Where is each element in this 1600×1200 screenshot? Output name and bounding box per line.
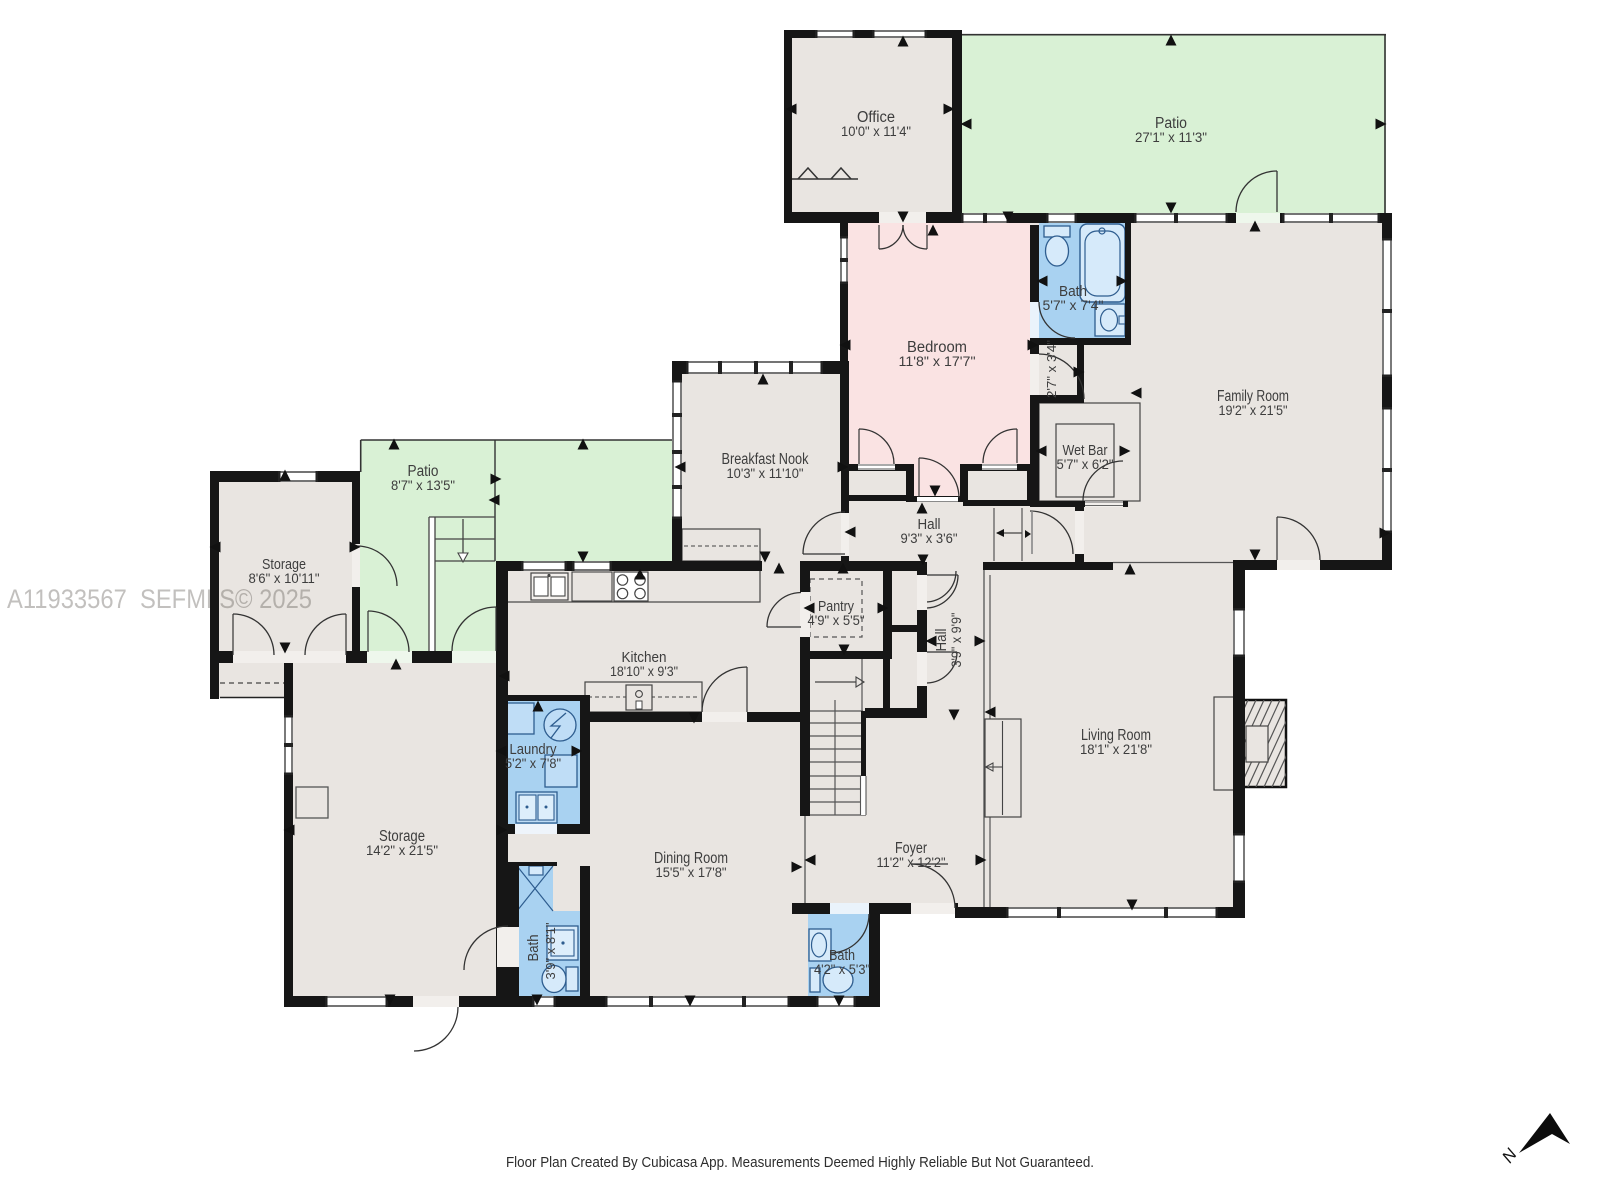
svg-text:14'2" x 21'5": 14'2" x 21'5" — [366, 842, 438, 858]
svg-text:11'2" x 12'2": 11'2" x 12'2" — [877, 854, 946, 870]
svg-text:2'7" x 3'4": 2'7" x 3'4" — [1044, 340, 1059, 398]
svg-text:5'2" x 7'8": 5'2" x 7'8" — [505, 756, 561, 771]
svg-text:5'7" x 7'4": 5'7" x 7'4" — [1043, 298, 1104, 313]
svg-text:15'5" x 17'8": 15'5" x 17'8" — [656, 864, 727, 880]
svg-text:4'9" x 5'5": 4'9" x 5'5" — [808, 613, 865, 628]
svg-text:A11933567 SEFMLS© 2025: A11933567 SEFMLS© 2025 — [7, 584, 312, 614]
svg-text:5'7" x 6'2": 5'7" x 6'2" — [1057, 457, 1114, 472]
svg-text:9'3" x 3'6": 9'3" x 3'6" — [901, 531, 958, 546]
svg-text:Bath: Bath — [525, 935, 542, 962]
svg-text:19'2" x 21'5": 19'2" x 21'5" — [1219, 402, 1288, 418]
svg-text:4'2" x 5'3": 4'2" x 5'3" — [814, 962, 870, 977]
svg-text:Floor Plan Created By Cubicasa: Floor Plan Created By Cubicasa App. Meas… — [506, 1154, 1094, 1171]
svg-text:3'9" x 8'1": 3'9" x 8'1" — [543, 922, 558, 979]
svg-text:27'1" x 11'3": 27'1" x 11'3" — [1135, 129, 1207, 145]
svg-text:10'0" x 11'4": 10'0" x 11'4" — [841, 123, 911, 139]
svg-text:8'7" x 13'5": 8'7" x 13'5" — [391, 477, 455, 493]
svg-text:8'6" x 10'11": 8'6" x 10'11" — [249, 571, 320, 586]
svg-text:Hall: Hall — [933, 629, 950, 652]
svg-text:3'9" x 9'9": 3'9" x 9'9" — [949, 612, 964, 667]
svg-text:10'3" x 11'10": 10'3" x 11'10" — [727, 465, 804, 481]
svg-text:11'8" x 17'7": 11'8" x 17'7" — [899, 353, 976, 369]
svg-text:18'10" x 9'3": 18'10" x 9'3" — [610, 664, 678, 679]
svg-text:18'1" x 21'8": 18'1" x 21'8" — [1080, 741, 1152, 757]
